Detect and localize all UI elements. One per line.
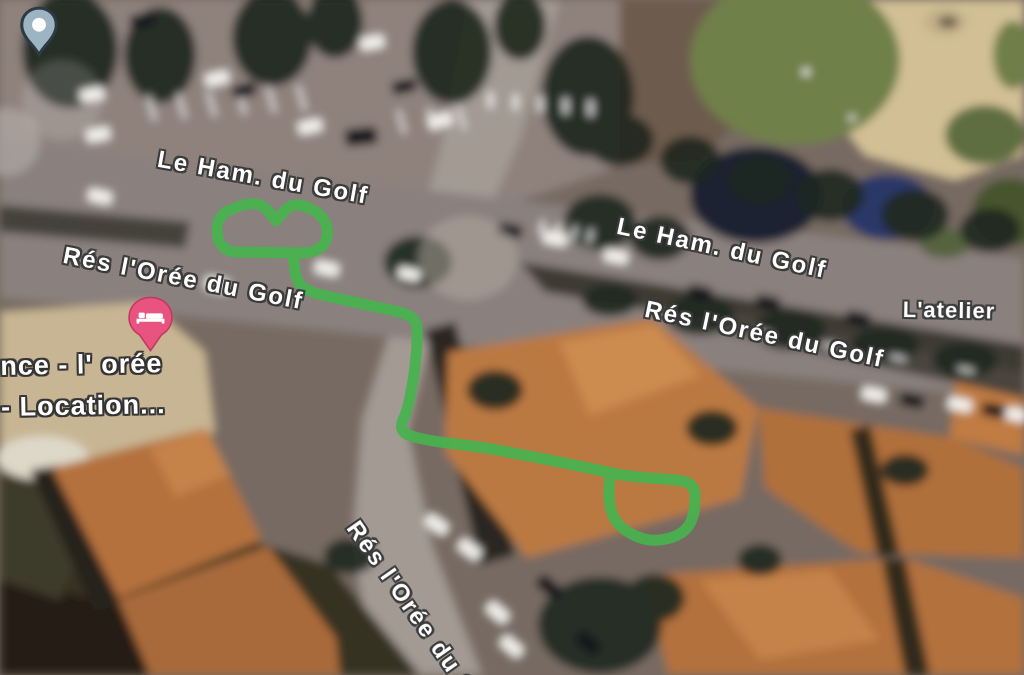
lodging-pin-body — [129, 297, 172, 350]
place-label[interactable]: nce - l' orée - Location... — [0, 343, 166, 428]
street-label-latelier: L'atelier — [903, 297, 996, 325]
lodging-pin[interactable] — [126, 295, 175, 353]
map-pin-dot — [32, 18, 46, 32]
place-label-line2[interactable]: - Location... — [1, 384, 166, 428]
map-canvas[interactable]: Le Ham. du Golf Le Ham. du Golf Rés l'Or… — [0, 0, 1024, 675]
map-pin-icon[interactable] — [16, 4, 62, 64]
